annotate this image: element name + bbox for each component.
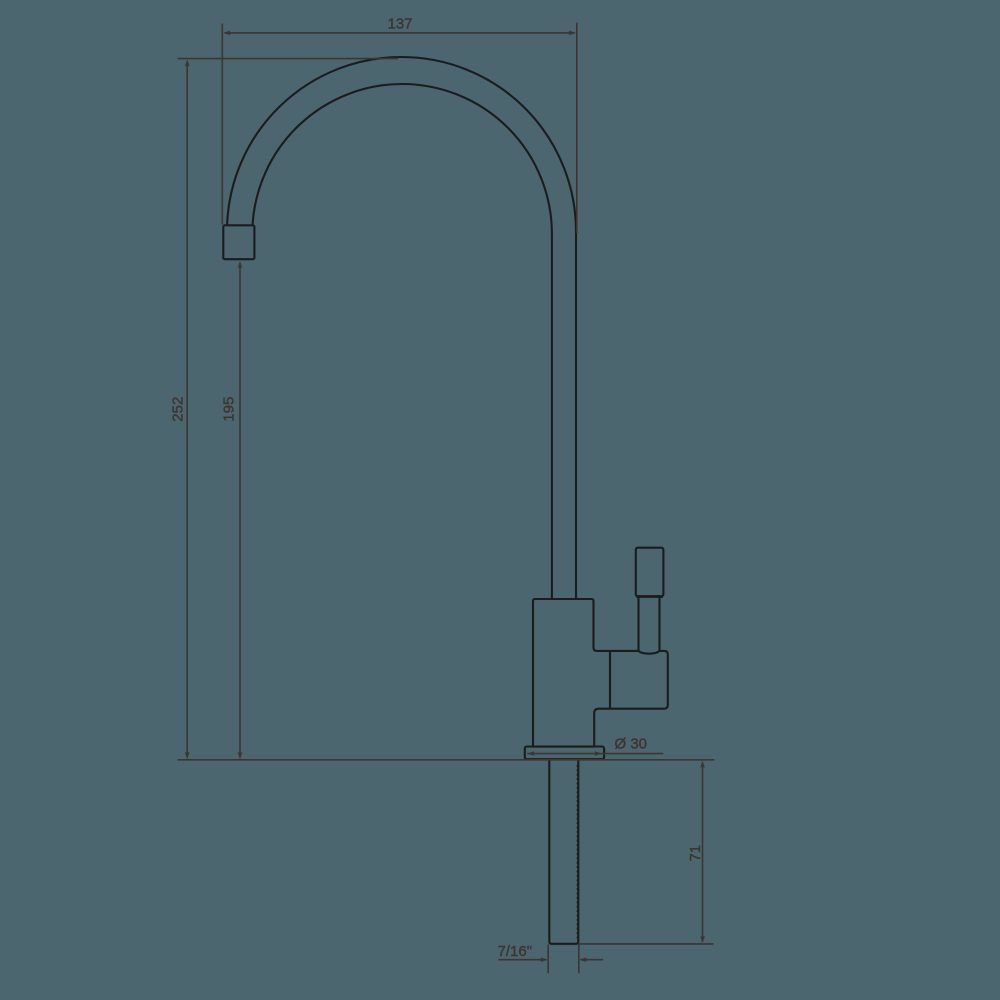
svg-text:195: 195: [221, 397, 238, 422]
svg-text:Ø 30: Ø 30: [615, 736, 648, 753]
svg-text:252: 252: [169, 397, 186, 422]
svg-text:7/16": 7/16": [498, 943, 533, 960]
svg-text:137: 137: [387, 16, 412, 33]
svg-text:71: 71: [687, 845, 704, 862]
